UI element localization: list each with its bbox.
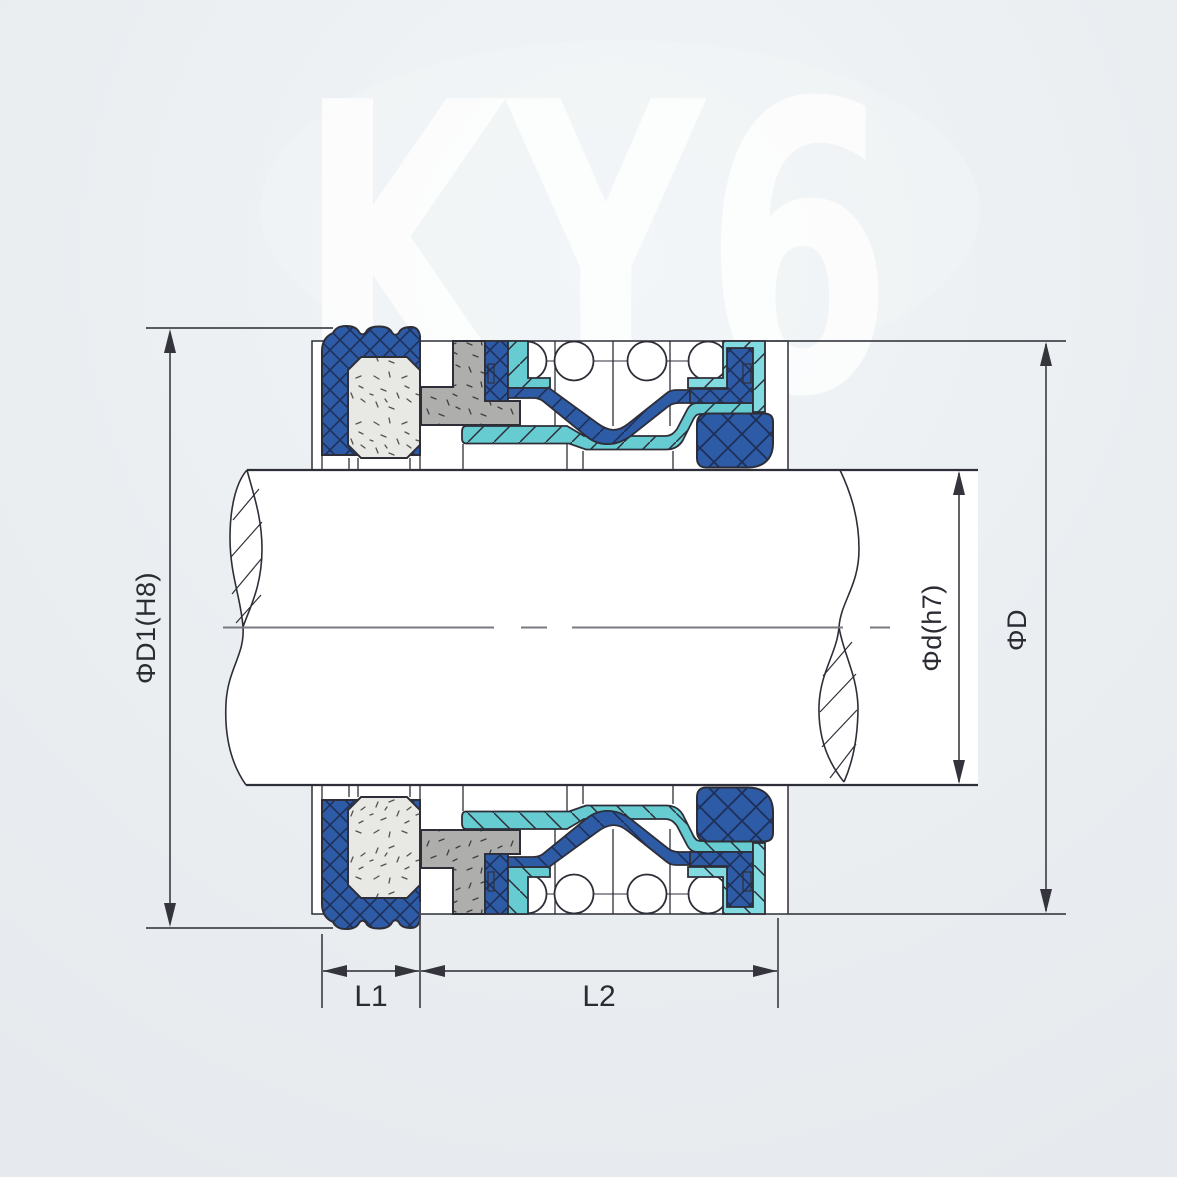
- spring-coil: [628, 342, 667, 381]
- carbon-seal-ring: [348, 357, 420, 458]
- spring-coil: [555, 342, 594, 381]
- drawing-canvas: KY6: [0, 0, 1177, 1177]
- clamp-ring: [697, 414, 773, 468]
- spring-coil: [689, 342, 728, 381]
- dim-label-d: Φd(h7): [917, 584, 947, 672]
- seal-assembly-lower: [312, 785, 788, 929]
- dim-label-d1: ΦD1(H8): [131, 572, 161, 684]
- dim-label-l2: L2: [582, 980, 615, 1013]
- dim-label-D: ΦD: [1002, 609, 1032, 651]
- mechanical-seal-drawing: KY6: [0, 0, 1177, 1177]
- dim-label-l1: L1: [354, 980, 387, 1013]
- seal-assembly-upper: [312, 326, 788, 470]
